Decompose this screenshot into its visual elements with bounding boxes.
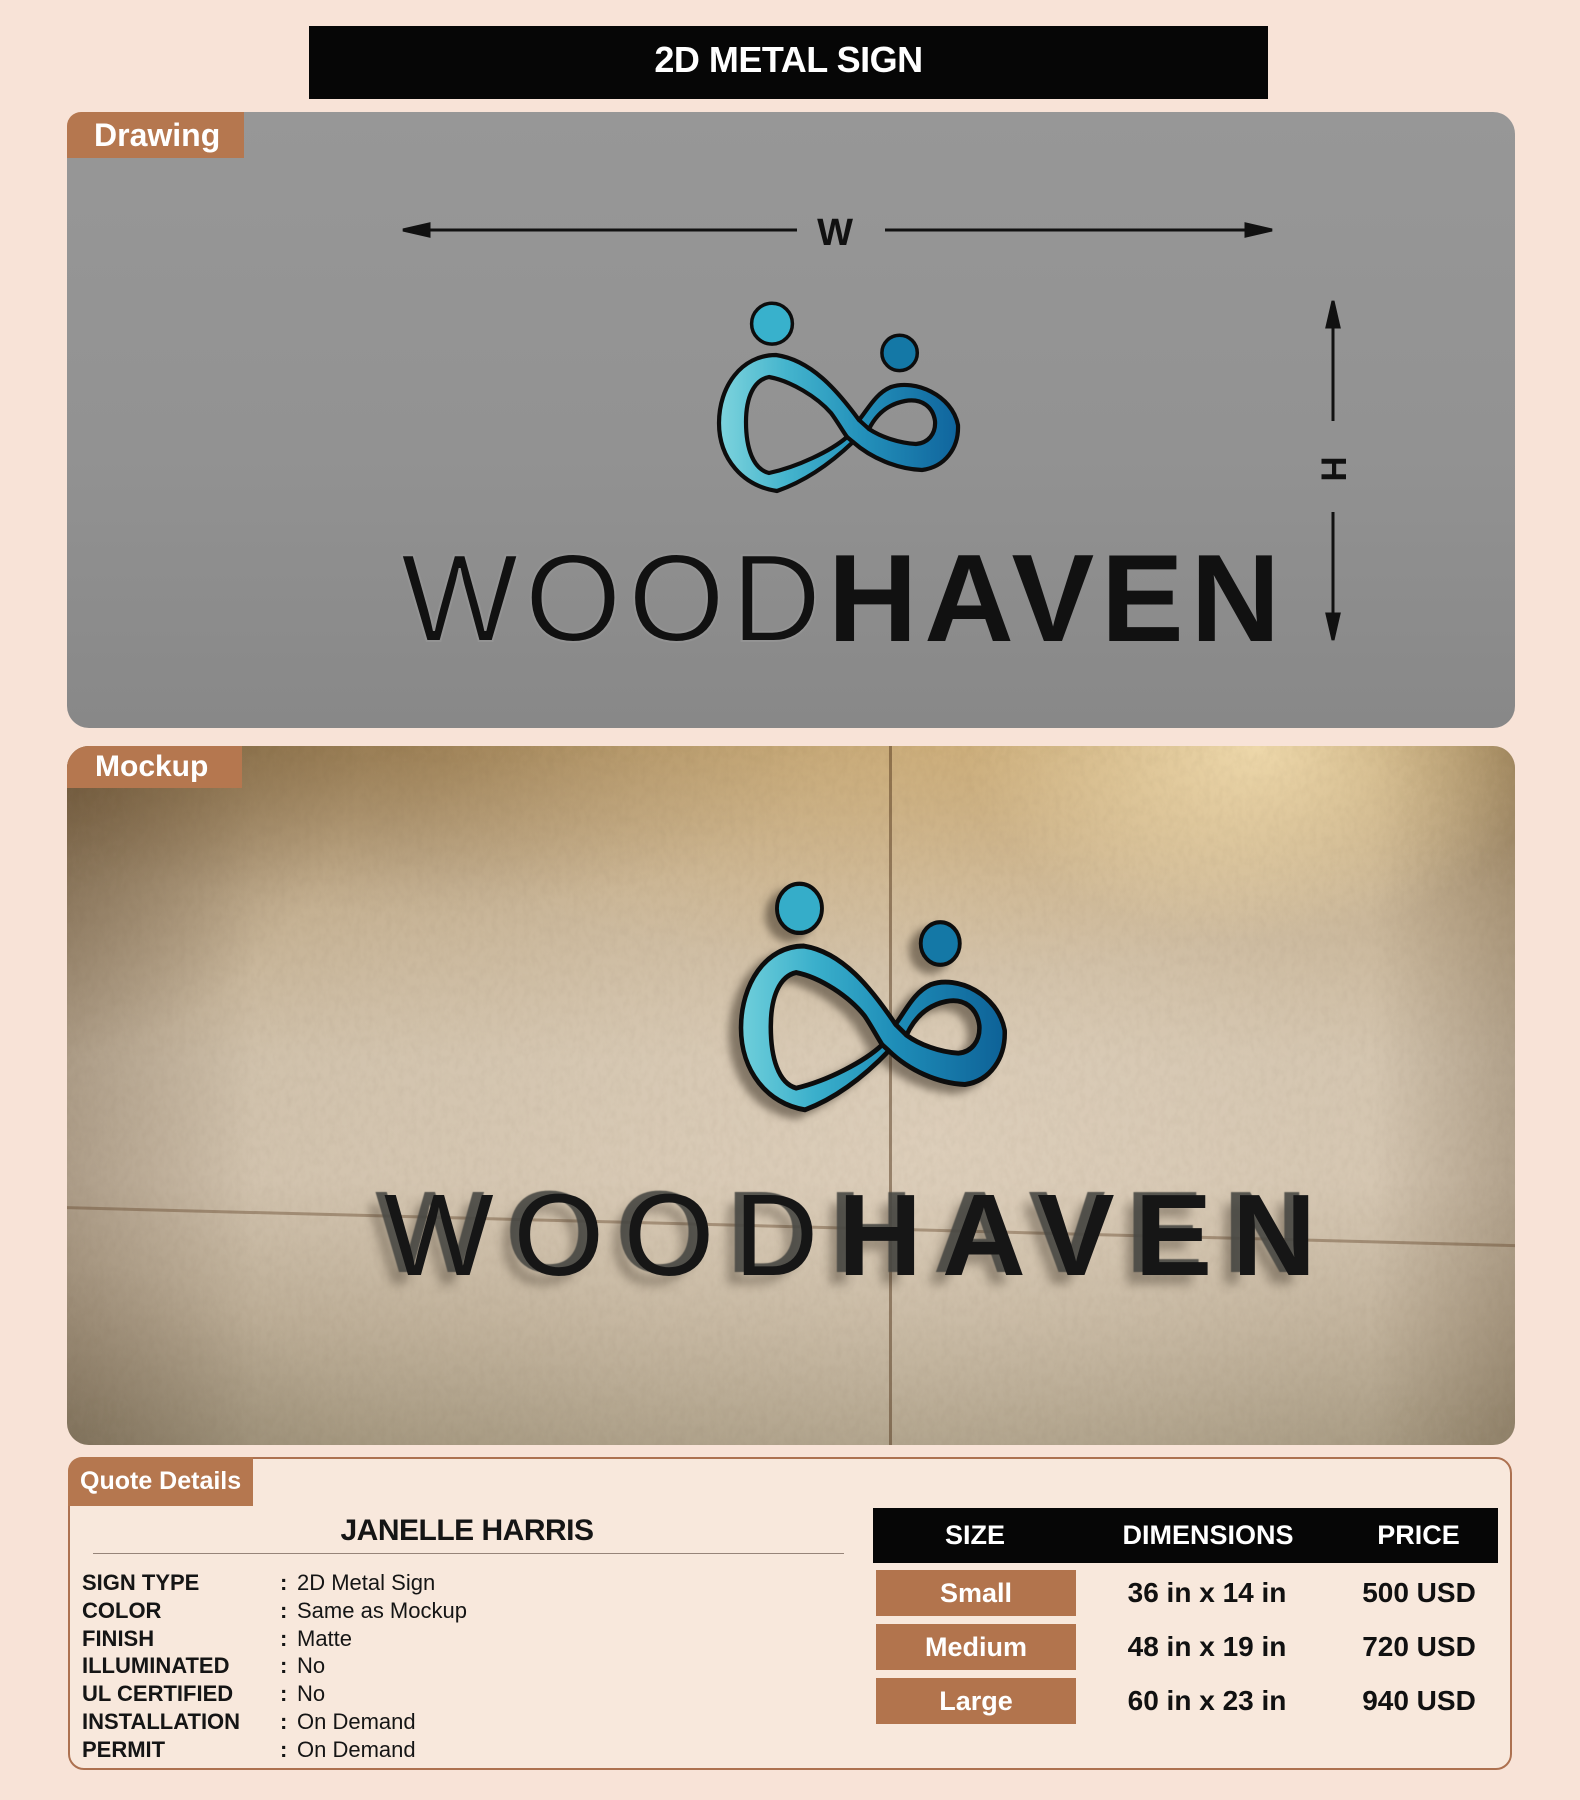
svg-text:H: H [1314,456,1353,481]
svg-text:W: W [817,212,853,254]
